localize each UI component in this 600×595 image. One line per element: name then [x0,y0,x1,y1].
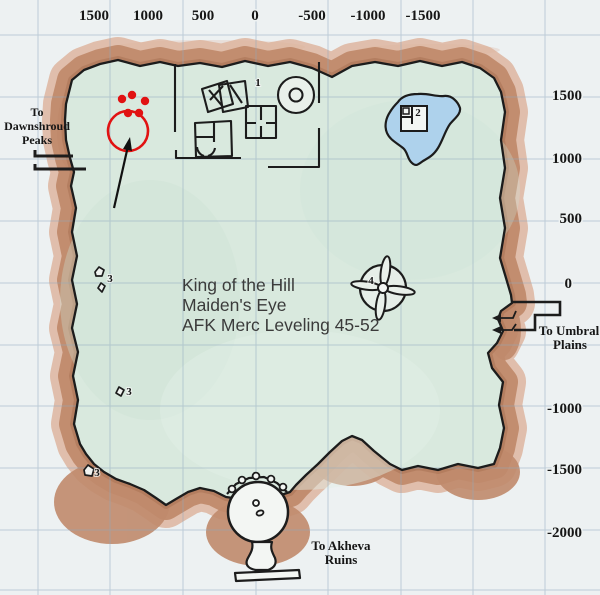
map-canvas: 1500 1000 500 0 -500 -1000 -1500 1500 10… [0,0,600,595]
poi-label-3b: 3 [126,386,132,398]
akheva-platform [235,570,300,581]
axis-right-label: -1500 [547,462,582,478]
axis-right-label: 500 [560,211,583,227]
poi-label-2: 2 [415,107,421,119]
axis-top-label: -1500 [406,8,441,24]
axis-right-label: 1500 [552,88,582,104]
axis-top-label: -1000 [351,8,386,24]
exit-dawnshroud-line3: Peaks [22,133,52,147]
axis-top-label: 1500 [79,8,109,24]
axis-top-label: 500 [192,8,215,24]
pond-house [401,106,427,131]
exit-dawnshroud-line2: Dawnshroud [4,119,70,133]
poi-label-3a: 3 [107,273,113,285]
exit-akheva-line1: To Akheva [311,538,371,553]
axis-top-label: -500 [298,8,326,24]
exit-umbral-line1: To Umbral [539,323,600,338]
exit-akheva-line2: Ruins [325,552,358,567]
building-rotunda [278,77,314,113]
zone-map: 1500 1000 500 0 -500 -1000 -1500 1500 10… [0,0,600,595]
axis-right-label: 1000 [552,151,582,167]
poi-label-4: 4 [368,275,374,287]
axis-top-label: 1000 [133,8,163,24]
axis-right-label: -1000 [547,401,582,417]
poi-label-1: 1 [255,77,261,89]
axis-right-label: -2000 [547,525,582,541]
exit-umbral-line2: Plains [553,337,587,352]
overlay-line2: Maiden's Eye [182,295,287,315]
overlay-line1: King of the Hill [182,275,295,295]
poi-label-3c: 3 [94,467,100,479]
axis-right-label: 0 [565,276,573,292]
exit-dawnshroud-line1: To [31,105,44,119]
axis-top-label: 0 [251,8,259,24]
overlay-line3: AFK Merc Leveling 45-52 [182,315,379,335]
